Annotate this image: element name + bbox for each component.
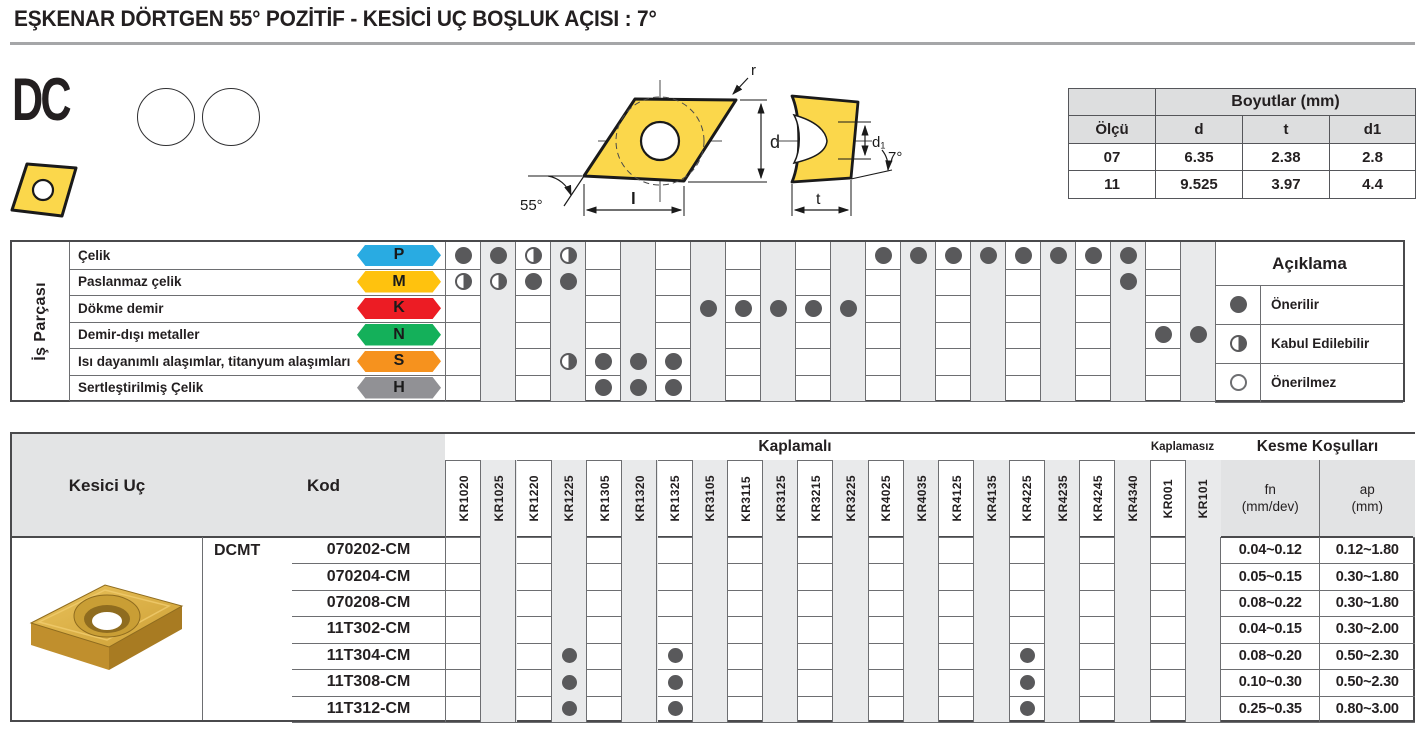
rating-cell bbox=[1180, 269, 1216, 297]
ap-unit: (mm) bbox=[1352, 499, 1383, 516]
grade-cell bbox=[656, 590, 692, 617]
grade-cell bbox=[586, 563, 622, 590]
insert-photo bbox=[17, 559, 197, 709]
grade-cell bbox=[692, 696, 728, 723]
grade-cell bbox=[480, 563, 516, 590]
rating-cell bbox=[725, 348, 761, 376]
grade-cell bbox=[515, 563, 551, 590]
dim-header-d1: d1 bbox=[1329, 115, 1416, 144]
grade-cell bbox=[903, 616, 939, 643]
rating-cell bbox=[585, 375, 621, 403]
fn-value: 0.10~0.30 bbox=[1220, 669, 1320, 696]
grade-cell bbox=[1114, 696, 1150, 723]
grade-cell bbox=[1150, 616, 1186, 643]
rating-cell bbox=[550, 322, 586, 350]
rating-cell bbox=[515, 295, 551, 323]
rating-cell bbox=[445, 295, 481, 323]
rating-cell bbox=[1180, 348, 1216, 376]
grade-cell bbox=[480, 590, 516, 617]
rating-cell bbox=[830, 375, 866, 403]
rating-cell bbox=[1075, 348, 1111, 376]
grade-cell bbox=[832, 563, 868, 590]
grade-cell bbox=[938, 590, 974, 617]
grade-cell bbox=[1185, 643, 1221, 670]
grade-cell bbox=[1079, 563, 1115, 590]
grade-column-header: KR1225 bbox=[551, 460, 587, 538]
grade-cell bbox=[1114, 616, 1150, 643]
grade-cell bbox=[938, 616, 974, 643]
grade-code-vertical: KR4225 bbox=[1020, 475, 1034, 521]
rating-cell bbox=[1145, 375, 1181, 403]
grade-cell bbox=[586, 590, 622, 617]
dim-header-size: Ölçü bbox=[1068, 115, 1156, 144]
grade-cell bbox=[762, 537, 798, 564]
rating-cell bbox=[935, 375, 971, 403]
grade-cell bbox=[551, 616, 587, 643]
grade-cell bbox=[762, 643, 798, 670]
grade-cell bbox=[656, 643, 692, 670]
rating-cell bbox=[620, 375, 656, 403]
grade-cell bbox=[586, 669, 622, 696]
rating-cell bbox=[725, 242, 761, 270]
center-hole bbox=[641, 122, 679, 160]
rating-cell bbox=[865, 348, 901, 376]
rating-cell bbox=[865, 295, 901, 323]
rating-cell bbox=[1075, 269, 1111, 297]
rating-cell bbox=[620, 295, 656, 323]
grade-cell bbox=[692, 563, 728, 590]
ap-value: 0.50~2.30 bbox=[1319, 669, 1416, 696]
rating-cell bbox=[900, 322, 936, 350]
rating-cell bbox=[760, 322, 796, 350]
rating-cell bbox=[935, 295, 971, 323]
grade-cell bbox=[621, 669, 657, 696]
rating-cell bbox=[1040, 375, 1076, 403]
grade-cell bbox=[480, 537, 516, 564]
rating-cell bbox=[1040, 242, 1076, 270]
rating-cell bbox=[1040, 322, 1076, 350]
rating-cell bbox=[725, 269, 761, 297]
grade-cell bbox=[762, 696, 798, 723]
grade-cell bbox=[1079, 590, 1115, 617]
insert-code: 11T302-CM bbox=[292, 616, 445, 643]
rating-cell bbox=[1040, 269, 1076, 297]
rating-dot-full bbox=[560, 273, 577, 290]
rating-cell bbox=[1075, 242, 1111, 270]
rating-cell bbox=[480, 348, 516, 376]
rating-cell bbox=[1180, 375, 1216, 403]
grade-cell bbox=[692, 590, 728, 617]
grade-cell bbox=[551, 696, 587, 723]
legend-symbol-cell bbox=[1215, 285, 1260, 325]
rating-cell bbox=[655, 269, 691, 297]
dim-label-d: d bbox=[770, 132, 780, 152]
grade-cell bbox=[692, 616, 728, 643]
grade-cell bbox=[903, 590, 939, 617]
grade-cell bbox=[515, 590, 551, 617]
grade-cell bbox=[1185, 537, 1221, 564]
rating-dot-half bbox=[455, 273, 472, 290]
grade-cell bbox=[692, 537, 728, 564]
rating-cell bbox=[795, 269, 831, 297]
rating-dot-full bbox=[525, 273, 542, 290]
grade-cell bbox=[938, 537, 974, 564]
rating-cell bbox=[725, 295, 761, 323]
rating-cell bbox=[445, 322, 481, 350]
grade-cell bbox=[445, 616, 481, 643]
grade-cell bbox=[551, 669, 587, 696]
rating-dot-full bbox=[1050, 247, 1067, 264]
rating-cell bbox=[865, 322, 901, 350]
rating-cell bbox=[515, 242, 551, 270]
rating-cell bbox=[1145, 269, 1181, 297]
grade-code-vertical: KR1305 bbox=[598, 475, 612, 521]
rating-cell bbox=[970, 375, 1006, 403]
grade-cell bbox=[797, 590, 833, 617]
rating-cell bbox=[655, 242, 691, 270]
rating-cell bbox=[515, 269, 551, 297]
grade-cell bbox=[1114, 643, 1150, 670]
coated-header: Kaplamalı bbox=[445, 434, 1146, 461]
uncoated-header: Kaplamasız bbox=[1145, 434, 1221, 461]
rating-cell bbox=[1040, 348, 1076, 376]
grade-cell bbox=[868, 669, 904, 696]
rating-dot-full bbox=[980, 247, 997, 264]
rating-dot-full bbox=[910, 247, 927, 264]
dim-header-d: d bbox=[1155, 115, 1243, 144]
rating-cell bbox=[900, 242, 936, 270]
dim-table-title: Boyutlar (mm) bbox=[1155, 88, 1416, 116]
rating-cell bbox=[585, 348, 621, 376]
grade-cell bbox=[727, 590, 763, 617]
grade-cell bbox=[832, 696, 868, 723]
grade-code-vertical: KR4135 bbox=[985, 475, 999, 521]
rating-cell bbox=[690, 242, 726, 270]
grade-cell bbox=[445, 537, 481, 564]
rating-dot-full bbox=[630, 379, 647, 396]
catalog-page: EŞKENAR DÖRTGEN 55° POZİTİF - KESİCİ UÇ … bbox=[0, 0, 1425, 737]
rating-cell bbox=[1005, 269, 1041, 297]
grade-cell bbox=[1044, 643, 1080, 670]
rating-cell bbox=[655, 375, 691, 403]
grade-cell bbox=[903, 537, 939, 564]
material-group-tag: S bbox=[357, 351, 441, 373]
rating-cell bbox=[935, 348, 971, 376]
rating-cell bbox=[550, 348, 586, 376]
insert-code: 070204-CM bbox=[292, 563, 445, 590]
rating-cell bbox=[970, 322, 1006, 350]
grade-column-header: KR4135 bbox=[973, 460, 1009, 538]
grade-column-header: KR001 bbox=[1150, 460, 1186, 538]
rating-dot-full bbox=[665, 353, 682, 370]
grade-cell bbox=[903, 563, 939, 590]
rating-dot-full bbox=[1085, 247, 1102, 264]
grade-cell bbox=[656, 669, 692, 696]
rating-cell bbox=[830, 322, 866, 350]
insert-code: 11T312-CM bbox=[292, 696, 445, 723]
rating-cell bbox=[830, 242, 866, 270]
rating-dot-full bbox=[630, 353, 647, 370]
grade-cell bbox=[1009, 537, 1045, 564]
rating-cell bbox=[760, 348, 796, 376]
grade-cell bbox=[903, 669, 939, 696]
grade-cell bbox=[445, 669, 481, 696]
grade-cell bbox=[1185, 590, 1221, 617]
r-leader-line bbox=[733, 78, 748, 94]
grade-code-vertical: KR3105 bbox=[703, 475, 717, 521]
rating-cell bbox=[760, 269, 796, 297]
rating-cell bbox=[970, 242, 1006, 270]
grade-cell bbox=[797, 537, 833, 564]
rating-dot-full bbox=[875, 247, 892, 264]
material-group-tag: M bbox=[357, 271, 441, 293]
grade-cell bbox=[832, 590, 868, 617]
grade-cell bbox=[515, 643, 551, 670]
conditions-header: Kesme Koşulları bbox=[1220, 434, 1415, 461]
grade-cell bbox=[1044, 616, 1080, 643]
rating-cell bbox=[1005, 295, 1041, 323]
grade-cell bbox=[727, 563, 763, 590]
rating-cell bbox=[1110, 269, 1146, 297]
legend-full-icon bbox=[1230, 296, 1247, 313]
grade-cell bbox=[621, 537, 657, 564]
grade-code-vertical: KR3225 bbox=[844, 475, 858, 521]
grade-cell bbox=[480, 669, 516, 696]
grade-cell bbox=[973, 590, 1009, 617]
workpiece-table: İş Parçası ÇelikPPaslanmaz çelikMDökme d… bbox=[10, 240, 1405, 402]
grade-code-vertical: KR4035 bbox=[915, 475, 929, 521]
rating-cell bbox=[550, 269, 586, 297]
rating-cell bbox=[690, 269, 726, 297]
rating-cell bbox=[865, 242, 901, 270]
grade-cell bbox=[621, 616, 657, 643]
dim-value: 2.8 bbox=[1329, 143, 1416, 171]
grade-cell bbox=[480, 616, 516, 643]
rating-cell bbox=[445, 375, 481, 403]
grade-cell bbox=[1044, 669, 1080, 696]
material-group-tag: H bbox=[357, 377, 441, 399]
rating-cell bbox=[1145, 242, 1181, 270]
grade-cell bbox=[551, 537, 587, 564]
rating-dot-half bbox=[560, 353, 577, 370]
legend-half-icon bbox=[1230, 335, 1247, 352]
grade-cell bbox=[868, 616, 904, 643]
grade-cell bbox=[586, 643, 622, 670]
grade-dot bbox=[1020, 701, 1035, 716]
grade-cell bbox=[1185, 616, 1221, 643]
rating-cell bbox=[725, 375, 761, 403]
workpiece-header-label: İş Parçası bbox=[32, 282, 50, 361]
grade-cell bbox=[1185, 563, 1221, 590]
rating-cell bbox=[585, 322, 621, 350]
grade-cell bbox=[621, 696, 657, 723]
grade-cell bbox=[762, 616, 798, 643]
grade-cell bbox=[727, 696, 763, 723]
insert-shape-icon bbox=[4, 158, 86, 222]
rating-cell bbox=[760, 295, 796, 323]
insert-code: 070208-CM bbox=[292, 590, 445, 617]
grade-column-header: KR4025 bbox=[868, 460, 904, 538]
fn-value: 0.08~0.22 bbox=[1220, 590, 1320, 617]
grade-column-header: KR1025 bbox=[480, 460, 516, 538]
rating-cell bbox=[970, 295, 1006, 323]
grade-cell bbox=[797, 643, 833, 670]
insert-series-label: DCMT bbox=[202, 537, 292, 564]
rating-cell bbox=[900, 295, 936, 323]
rating-cell bbox=[620, 269, 656, 297]
grade-code-vertical: KR1325 bbox=[668, 475, 682, 521]
grade-cell bbox=[1079, 616, 1115, 643]
ap-label: ap bbox=[1360, 482, 1375, 499]
rating-cell bbox=[1040, 295, 1076, 323]
title-divider bbox=[10, 42, 1415, 45]
rating-cell bbox=[550, 375, 586, 403]
rating-cell bbox=[690, 348, 726, 376]
rating-cell bbox=[480, 269, 516, 297]
rating-cell bbox=[515, 348, 551, 376]
rating-dot-full bbox=[1190, 326, 1207, 343]
rating-cell bbox=[655, 295, 691, 323]
dim-value: 9.525 bbox=[1155, 170, 1243, 199]
insert-code: 11T304-CM bbox=[292, 643, 445, 670]
rating-dot-full bbox=[770, 300, 787, 317]
grade-dot bbox=[562, 648, 577, 663]
grade-cell bbox=[515, 669, 551, 696]
grade-cell bbox=[1114, 537, 1150, 564]
grade-cell bbox=[973, 563, 1009, 590]
rating-dot-half bbox=[490, 273, 507, 290]
dim-value: 2.38 bbox=[1242, 143, 1330, 171]
grade-cell bbox=[1079, 669, 1115, 696]
insert-shape-code: DC bbox=[12, 70, 69, 130]
grade-cell bbox=[515, 616, 551, 643]
grade-dot bbox=[562, 701, 577, 716]
grade-cell bbox=[551, 590, 587, 617]
dim-size-11: 11 bbox=[1068, 170, 1156, 199]
grade-column-header: KR3115 bbox=[727, 460, 763, 538]
grade-cell bbox=[586, 696, 622, 723]
dim-label-t: t bbox=[816, 191, 821, 208]
material-group-tag: N bbox=[357, 324, 441, 346]
rating-cell bbox=[830, 295, 866, 323]
dim-corner-cell bbox=[1068, 88, 1156, 116]
grade-cell bbox=[727, 669, 763, 696]
rating-cell bbox=[690, 322, 726, 350]
grade-cell bbox=[762, 669, 798, 696]
grade-column-header: KR4125 bbox=[938, 460, 974, 538]
ap-value: 0.80~3.00 bbox=[1319, 696, 1416, 723]
fn-value: 0.08~0.20 bbox=[1220, 643, 1320, 670]
rating-cell bbox=[760, 242, 796, 270]
grade-cell bbox=[1044, 696, 1080, 723]
grade-cell bbox=[832, 669, 868, 696]
grade-cell bbox=[973, 537, 1009, 564]
rating-cell bbox=[585, 295, 621, 323]
grade-cell bbox=[727, 537, 763, 564]
grade-cell bbox=[1185, 669, 1221, 696]
rating-dot-full bbox=[1120, 247, 1137, 264]
rating-cell bbox=[935, 322, 971, 350]
grade-cell bbox=[868, 537, 904, 564]
grade-dot bbox=[668, 675, 683, 690]
grade-cell bbox=[973, 616, 1009, 643]
grade-cell bbox=[621, 643, 657, 670]
grade-cell bbox=[938, 696, 974, 723]
legend-none-icon bbox=[1230, 374, 1247, 391]
grade-column-header: KR1320 bbox=[621, 460, 657, 538]
rating-cell bbox=[795, 242, 831, 270]
grade-code-vertical: KR3125 bbox=[774, 475, 788, 521]
legend-item-label: Önerilmez bbox=[1260, 363, 1403, 403]
rating-cell bbox=[480, 375, 516, 403]
grade-cell bbox=[868, 643, 904, 670]
technical-drawing: r d l 55° d₁ t 7° bbox=[520, 58, 1030, 238]
rating-cell bbox=[1005, 322, 1041, 350]
grade-cell bbox=[938, 669, 974, 696]
fn-unit: (mm/dev) bbox=[1242, 499, 1299, 516]
ap-header: ap (mm) bbox=[1319, 460, 1416, 538]
grade-cell bbox=[1114, 563, 1150, 590]
grade-column-header: KR3105 bbox=[692, 460, 728, 538]
grade-cell bbox=[1009, 643, 1045, 670]
grade-column-header: KR3225 bbox=[832, 460, 868, 538]
grade-cell bbox=[797, 616, 833, 643]
rating-dot-half bbox=[560, 247, 577, 264]
grade-cell bbox=[727, 616, 763, 643]
dim-value: 6.35 bbox=[1155, 143, 1243, 171]
grade-cell bbox=[621, 590, 657, 617]
dim-label-d1: d₁ bbox=[872, 134, 885, 151]
rating-dot-full bbox=[1155, 326, 1172, 343]
dim-size-07: 07 bbox=[1068, 143, 1156, 171]
insert-photo-hole bbox=[92, 612, 122, 630]
grade-cell bbox=[1150, 696, 1186, 723]
rating-cell bbox=[935, 242, 971, 270]
grade-cell bbox=[727, 643, 763, 670]
rating-cell bbox=[935, 269, 971, 297]
rating-dot-full bbox=[595, 353, 612, 370]
grade-cell bbox=[1009, 669, 1045, 696]
grade-cell bbox=[551, 563, 587, 590]
grade-dot bbox=[668, 701, 683, 716]
grade-dot bbox=[562, 675, 577, 690]
grade-code-vertical: KR4125 bbox=[950, 475, 964, 521]
legend-item-label: Kabul Edilebilir bbox=[1260, 324, 1403, 364]
grade-column-header: KR4340 bbox=[1114, 460, 1150, 538]
fn-value: 0.05~0.15 bbox=[1220, 563, 1320, 590]
insert-photo-cell bbox=[12, 537, 203, 720]
rating-dot-full bbox=[455, 247, 472, 264]
ap-value: 0.30~1.80 bbox=[1319, 590, 1416, 617]
ap-value: 0.50~2.30 bbox=[1319, 643, 1416, 670]
grade-code-vertical: KR1025 bbox=[492, 475, 506, 521]
grade-cell bbox=[973, 669, 1009, 696]
insert-code: 070202-CM bbox=[292, 537, 445, 564]
grade-cell bbox=[445, 563, 481, 590]
fn-value: 0.25~0.35 bbox=[1220, 696, 1320, 723]
grade-cell bbox=[762, 563, 798, 590]
grade-cell bbox=[868, 696, 904, 723]
grade-cell bbox=[586, 537, 622, 564]
grade-code-vertical: KR101 bbox=[1196, 479, 1210, 518]
grade-cell bbox=[1114, 590, 1150, 617]
grade-cell bbox=[1150, 590, 1186, 617]
dim-label-l: l bbox=[631, 189, 636, 208]
insert-icon-hole bbox=[33, 180, 53, 200]
page-title: EŞKENAR DÖRTGEN 55° POZİTİF - KESİCİ UÇ … bbox=[14, 6, 657, 32]
rating-cell bbox=[1075, 295, 1111, 323]
angle55-arc bbox=[548, 176, 571, 195]
